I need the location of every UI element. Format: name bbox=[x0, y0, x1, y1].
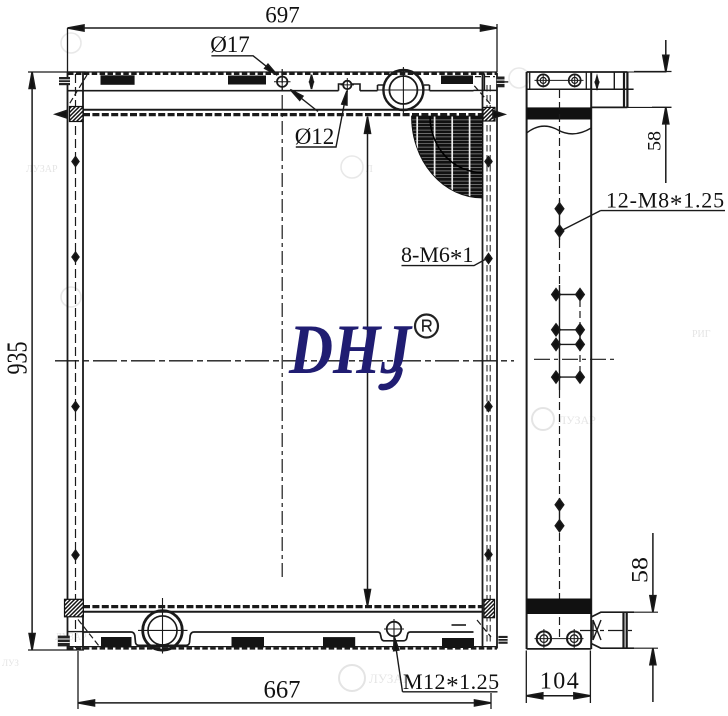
svg-text:Ø17: Ø17 bbox=[210, 32, 250, 57]
svg-text:697: 697 bbox=[265, 3, 300, 28]
svg-text:58: 58 bbox=[645, 131, 666, 151]
svg-text:Ø12: Ø12 bbox=[295, 124, 335, 149]
svg-text:ЛУЗ: ЛУЗ bbox=[2, 658, 19, 668]
svg-text:935: 935 bbox=[2, 342, 33, 375]
svg-text:104: 104 bbox=[540, 669, 581, 695]
svg-text:58: 58 bbox=[628, 557, 653, 583]
svg-text:РИГ: РИГ bbox=[692, 329, 711, 340]
svg-text:ЛУЗАР: ЛУЗАР bbox=[26, 164, 58, 175]
svg-text:667: 667 bbox=[264, 677, 301, 704]
